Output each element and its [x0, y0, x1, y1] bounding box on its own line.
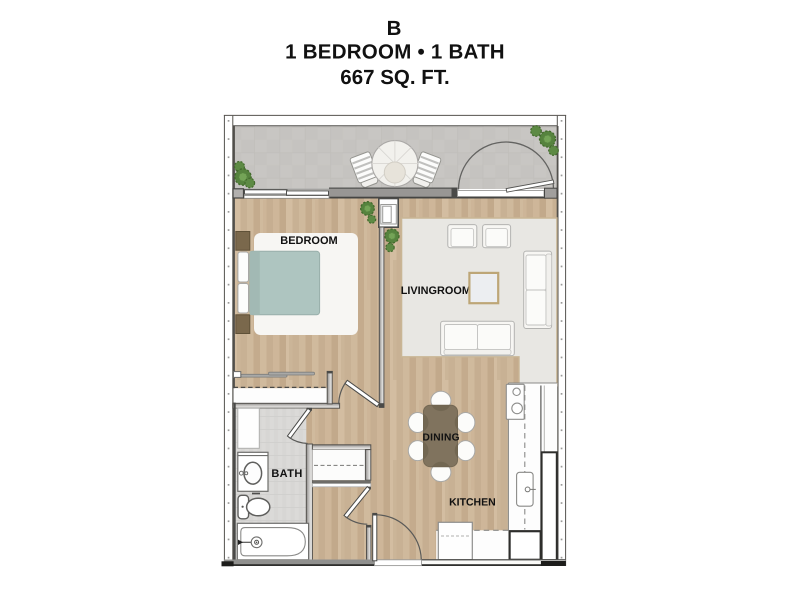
- svg-text:667 SQ. FT.: 667 SQ. FT.: [340, 66, 449, 89]
- svg-text:KITCHEN: KITCHEN: [449, 496, 496, 508]
- svg-text:DINING: DINING: [422, 433, 459, 444]
- svg-text:B: B: [387, 17, 402, 40]
- svg-text:LIVINGROOM: LIVINGROOM: [401, 285, 471, 297]
- svg-text:BATH: BATH: [271, 468, 302, 480]
- svg-text:BEDROOM: BEDROOM: [280, 235, 337, 247]
- svg-text:1 BEDROOM • 1 BATH: 1 BEDROOM • 1 BATH: [285, 41, 505, 64]
